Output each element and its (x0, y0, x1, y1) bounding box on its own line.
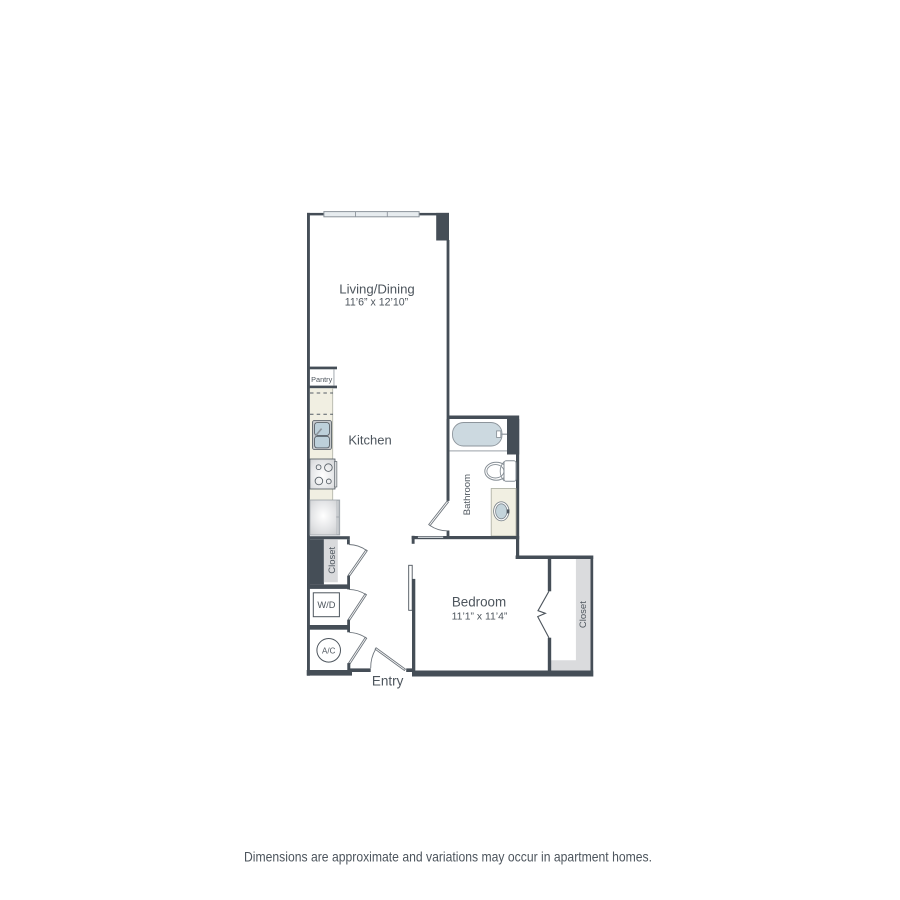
svg-text:Kitchen: Kitchen (348, 433, 391, 448)
svg-text:Bedroom: Bedroom (452, 595, 506, 610)
svg-text:W/D: W/D (317, 600, 335, 610)
svg-text:Dimensions are approximate and: Dimensions are approximate and variation… (244, 850, 652, 865)
svg-text:Pantry: Pantry (311, 375, 332, 384)
svg-text:Entry: Entry (372, 674, 404, 689)
svg-text:Closet: Closet (578, 601, 589, 628)
svg-text:A/C: A/C (322, 646, 336, 655)
svg-text:Bathroom: Bathroom (462, 474, 473, 515)
svg-text:Living/Dining: Living/Dining (339, 281, 415, 296)
svg-text:11’6” x 12’10”: 11’6” x 12’10” (345, 296, 409, 308)
svg-text:11’1” x 11’4”: 11’1” x 11’4” (452, 612, 508, 623)
svg-text:Closet: Closet (327, 546, 338, 573)
